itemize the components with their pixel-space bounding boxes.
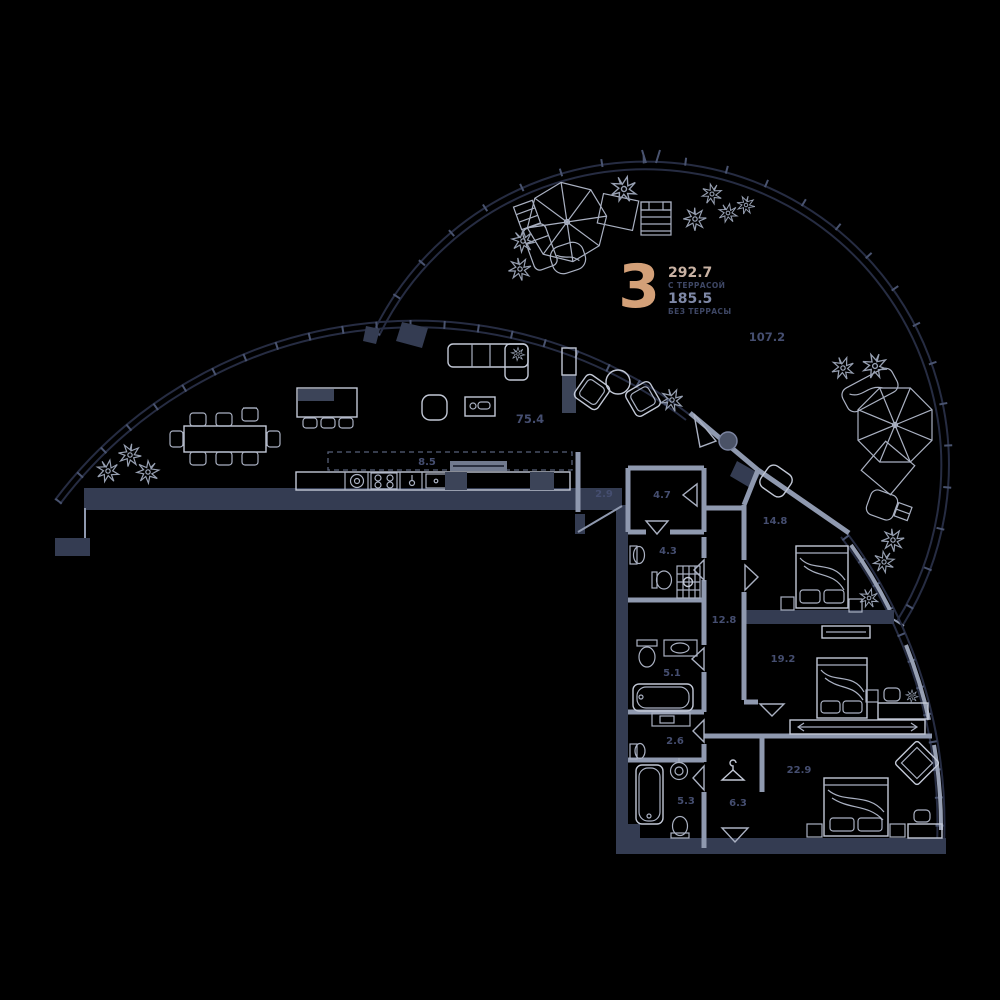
desk-chair (914, 810, 930, 822)
partition-walls (578, 413, 932, 848)
shower-icon (677, 566, 700, 598)
area-label-kitchen-zone: 8.5 (418, 457, 436, 468)
door-swing-icon (646, 521, 668, 534)
door-swing-icon (745, 565, 758, 590)
plant-icon (871, 549, 897, 575)
apartment-number: 3 (618, 252, 660, 322)
dining-area (95, 408, 280, 485)
door-swing-icon (683, 484, 697, 506)
faucet-icon (410, 475, 415, 486)
area-label-bedroom-3: 22.9 (787, 765, 812, 776)
plant-icon (680, 204, 711, 235)
area-label-laundry: 2.6 (666, 736, 684, 747)
toilet-icon (652, 571, 672, 589)
terrace-right-furniture (829, 349, 932, 609)
area-label-shower-room: 4.3 (659, 546, 677, 557)
sink-icon (351, 475, 364, 488)
toilet-icon (671, 817, 689, 839)
door-swing-icon (693, 720, 704, 742)
area-without-terrace-caption: БЕЗ ТЕРРАСЫ (668, 307, 732, 316)
plant-icon (734, 193, 759, 218)
tv-sideboard (450, 461, 507, 471)
structural-walls (55, 322, 946, 854)
chair-icon (242, 452, 258, 465)
coffee-table (465, 397, 495, 416)
dining-table (184, 426, 266, 452)
apartment-summary: 3 292.7 С ТЕРРАСОЙ 185.5 БЕЗ ТЕРРАСЫ (618, 252, 731, 322)
umbrella-icon (858, 388, 932, 462)
nightstand (890, 824, 905, 837)
area-label-bedroom-2: 19.2 (771, 654, 796, 665)
plant-icon (858, 349, 891, 382)
bbq-grill (641, 202, 671, 235)
area-without-terrace-value: 185.5 (668, 291, 712, 307)
plant-icon (829, 354, 857, 382)
plant-icon (699, 181, 724, 206)
plant-icon (95, 458, 120, 483)
right-window-wall-arc (841, 533, 944, 845)
bathtub-icon (633, 684, 693, 711)
stool-icon (303, 418, 317, 428)
hob-icon (371, 473, 397, 489)
area-label-hall: 2.9 (595, 489, 613, 500)
stool-icon (339, 418, 353, 428)
wardrobe-room (722, 760, 744, 780)
kitchen-counter (296, 472, 570, 490)
column (719, 432, 737, 450)
chair-icon (170, 431, 183, 447)
plant-icon (135, 459, 160, 484)
door-swing-icon (692, 648, 704, 670)
plant-icon (505, 254, 535, 284)
armchair (422, 395, 447, 420)
terrace-armchair (864, 488, 913, 527)
nightstand (866, 690, 878, 702)
chair-icon (190, 413, 206, 426)
kitchen-area (296, 388, 572, 490)
area-label-bathroom-1: 5.1 (663, 668, 681, 679)
washbasin-icon (630, 546, 645, 564)
chair-icon (216, 452, 232, 465)
washbasin-icon (630, 744, 645, 760)
washbasin-icon (664, 640, 697, 656)
area-with-terrace-caption: С ТЕРРАСОЙ (668, 281, 725, 290)
stool-icon (321, 418, 335, 428)
chair-icon (267, 431, 280, 447)
area-label-entry: 4.7 (653, 490, 671, 501)
door-swing-icon (760, 704, 784, 716)
floor-plan-page: 107.2 75.4 8.5 2.9 4.7 14.8 4.3 12.8 5.1… (0, 0, 1000, 1000)
nightstand (781, 597, 794, 610)
sofa (448, 344, 528, 380)
toilet-icon (637, 640, 657, 667)
bedroom-2-furniture (790, 658, 928, 734)
chair-icon (216, 413, 232, 426)
bathtub-icon (636, 765, 663, 824)
console (822, 626, 870, 638)
bedroom-3-furniture (807, 740, 942, 838)
chair-icon (242, 408, 258, 421)
terrace-table (861, 441, 915, 495)
area-with-terrace-value: 292.7 (668, 265, 712, 281)
desk-chair (884, 688, 900, 701)
area-label-bedroom-1: 14.8 (763, 516, 788, 527)
sliding-wardrobe (790, 720, 925, 734)
bed (796, 546, 848, 608)
area-label-wardrobe: 6.3 (729, 798, 747, 809)
floor-plan-svg: 107.2 75.4 8.5 2.9 4.7 14.8 4.3 12.8 5.1… (0, 0, 1000, 1000)
bed (824, 778, 888, 836)
bed (817, 658, 867, 718)
plant-icon (878, 525, 909, 556)
door-swing-icon (693, 766, 704, 790)
sunbed (548, 239, 589, 276)
oven-icon (426, 474, 446, 488)
chair-icon (190, 452, 206, 465)
armchair (573, 373, 612, 412)
area-label-bathroom-2: 5.3 (677, 796, 695, 807)
nightstand (807, 824, 822, 837)
area-label-corridor: 12.8 (712, 615, 737, 626)
area-label-terrace: 107.2 (749, 330, 785, 344)
plant-icon (717, 202, 739, 224)
hanger-icon (722, 760, 744, 780)
console-icon (652, 713, 690, 726)
area-label-living-kitchen: 75.4 (516, 412, 544, 426)
